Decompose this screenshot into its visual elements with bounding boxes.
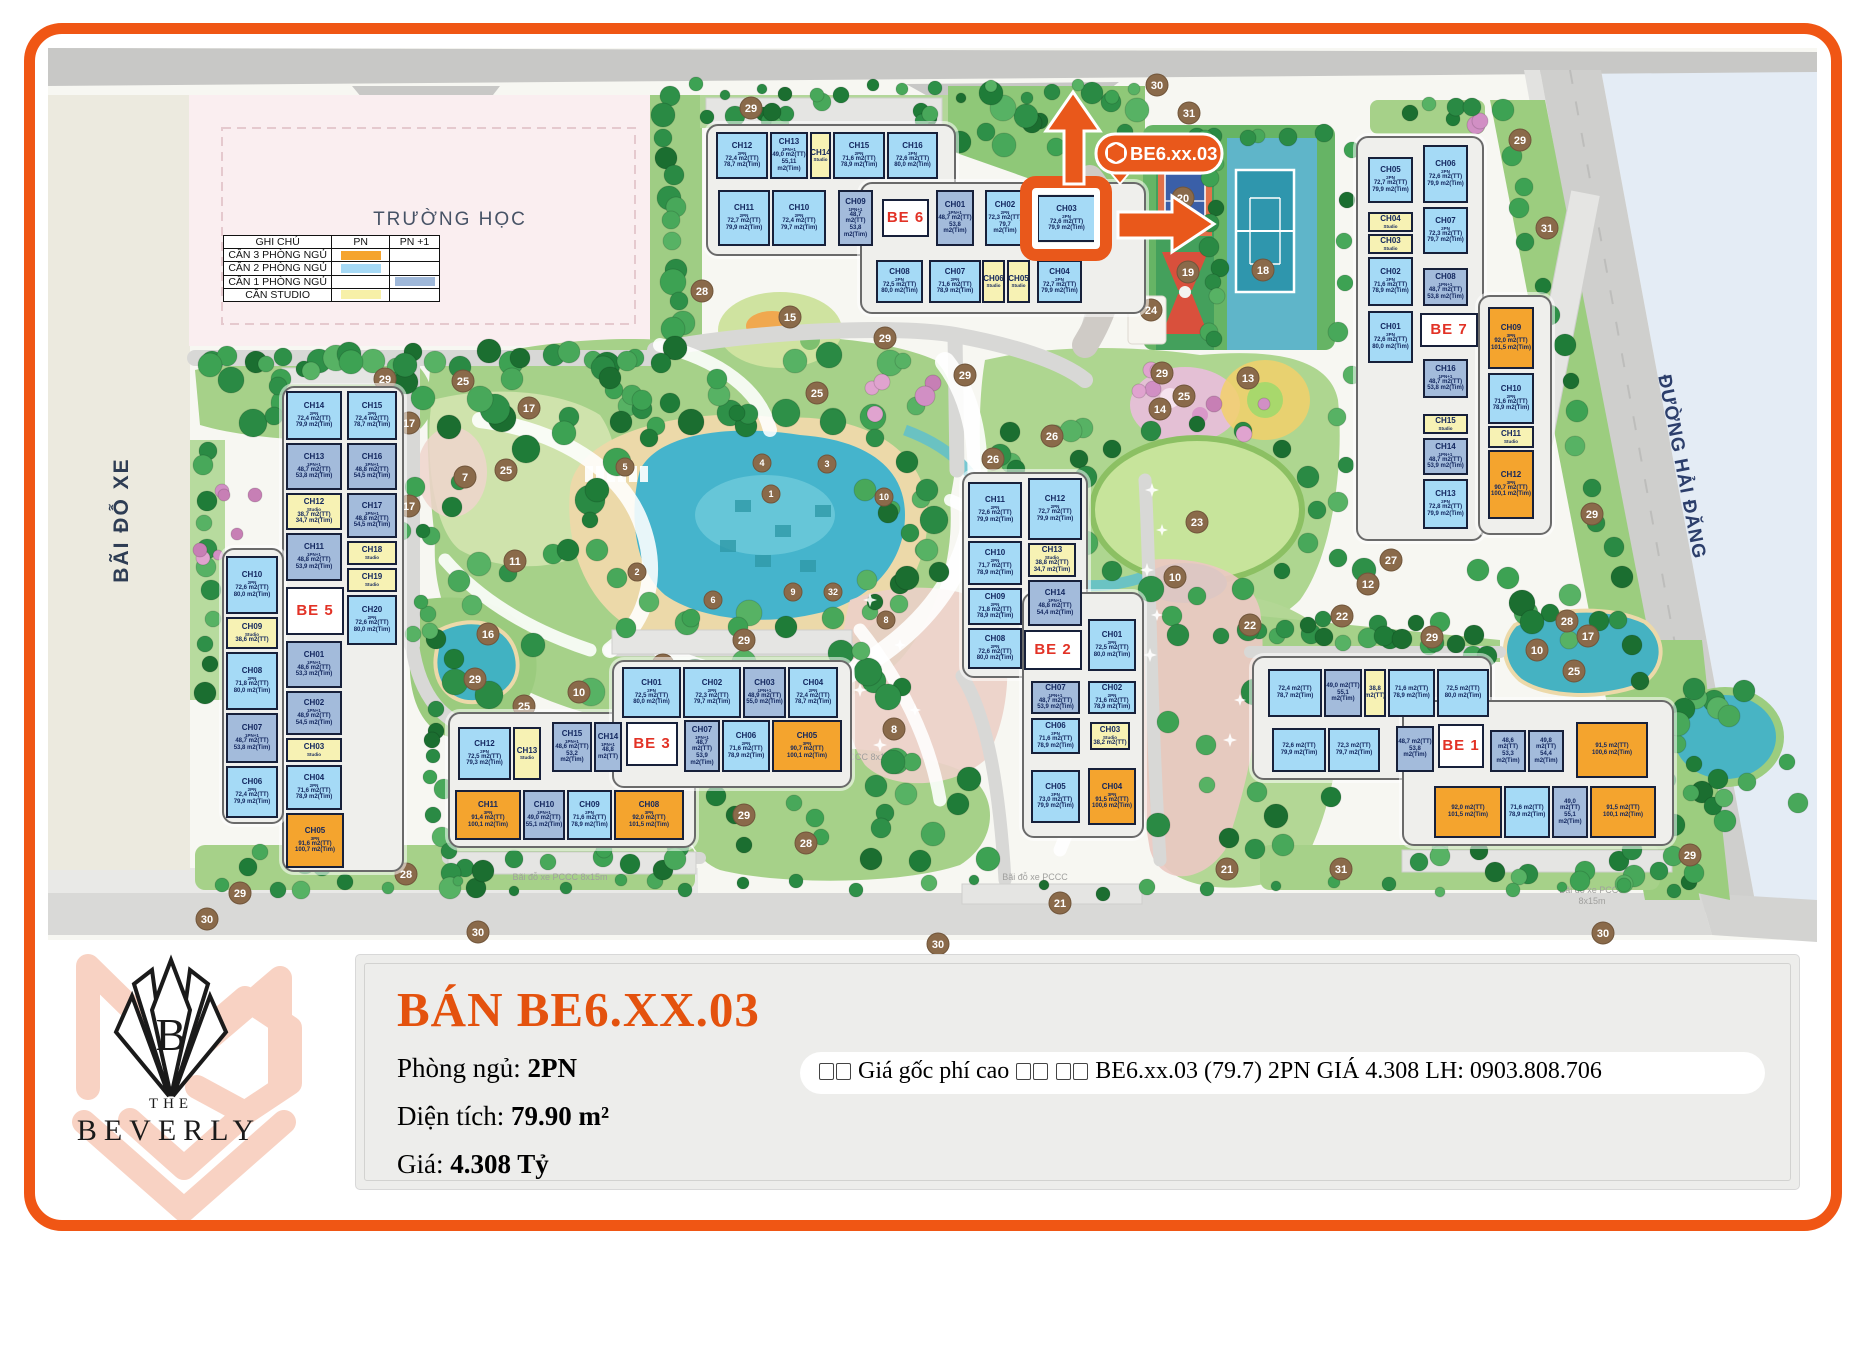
svg-text:BE6.xx.03: BE6.xx.03 <box>1130 143 1217 164</box>
